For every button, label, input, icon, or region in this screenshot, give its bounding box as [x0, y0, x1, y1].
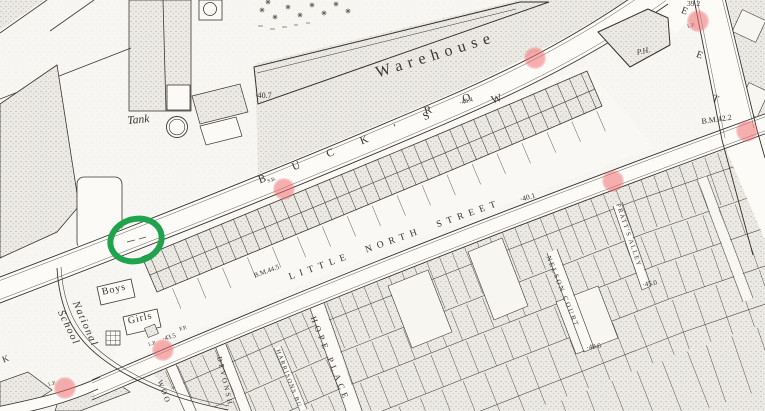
lamp-highlight	[736, 120, 758, 142]
lamp-highlight	[524, 47, 546, 69]
annotation-layer	[0, 0, 765, 411]
murder-site-marker	[102, 209, 171, 271]
lamp-highlight	[54, 377, 76, 399]
historic-map: Warehouse B U C K ' S R O W ·40.4 LITTLE…	[0, 0, 765, 411]
lamp-highlight	[602, 170, 624, 192]
lamp-highlight	[152, 339, 174, 361]
lamp-highlight	[273, 178, 295, 200]
lamp-highlight	[687, 10, 709, 32]
